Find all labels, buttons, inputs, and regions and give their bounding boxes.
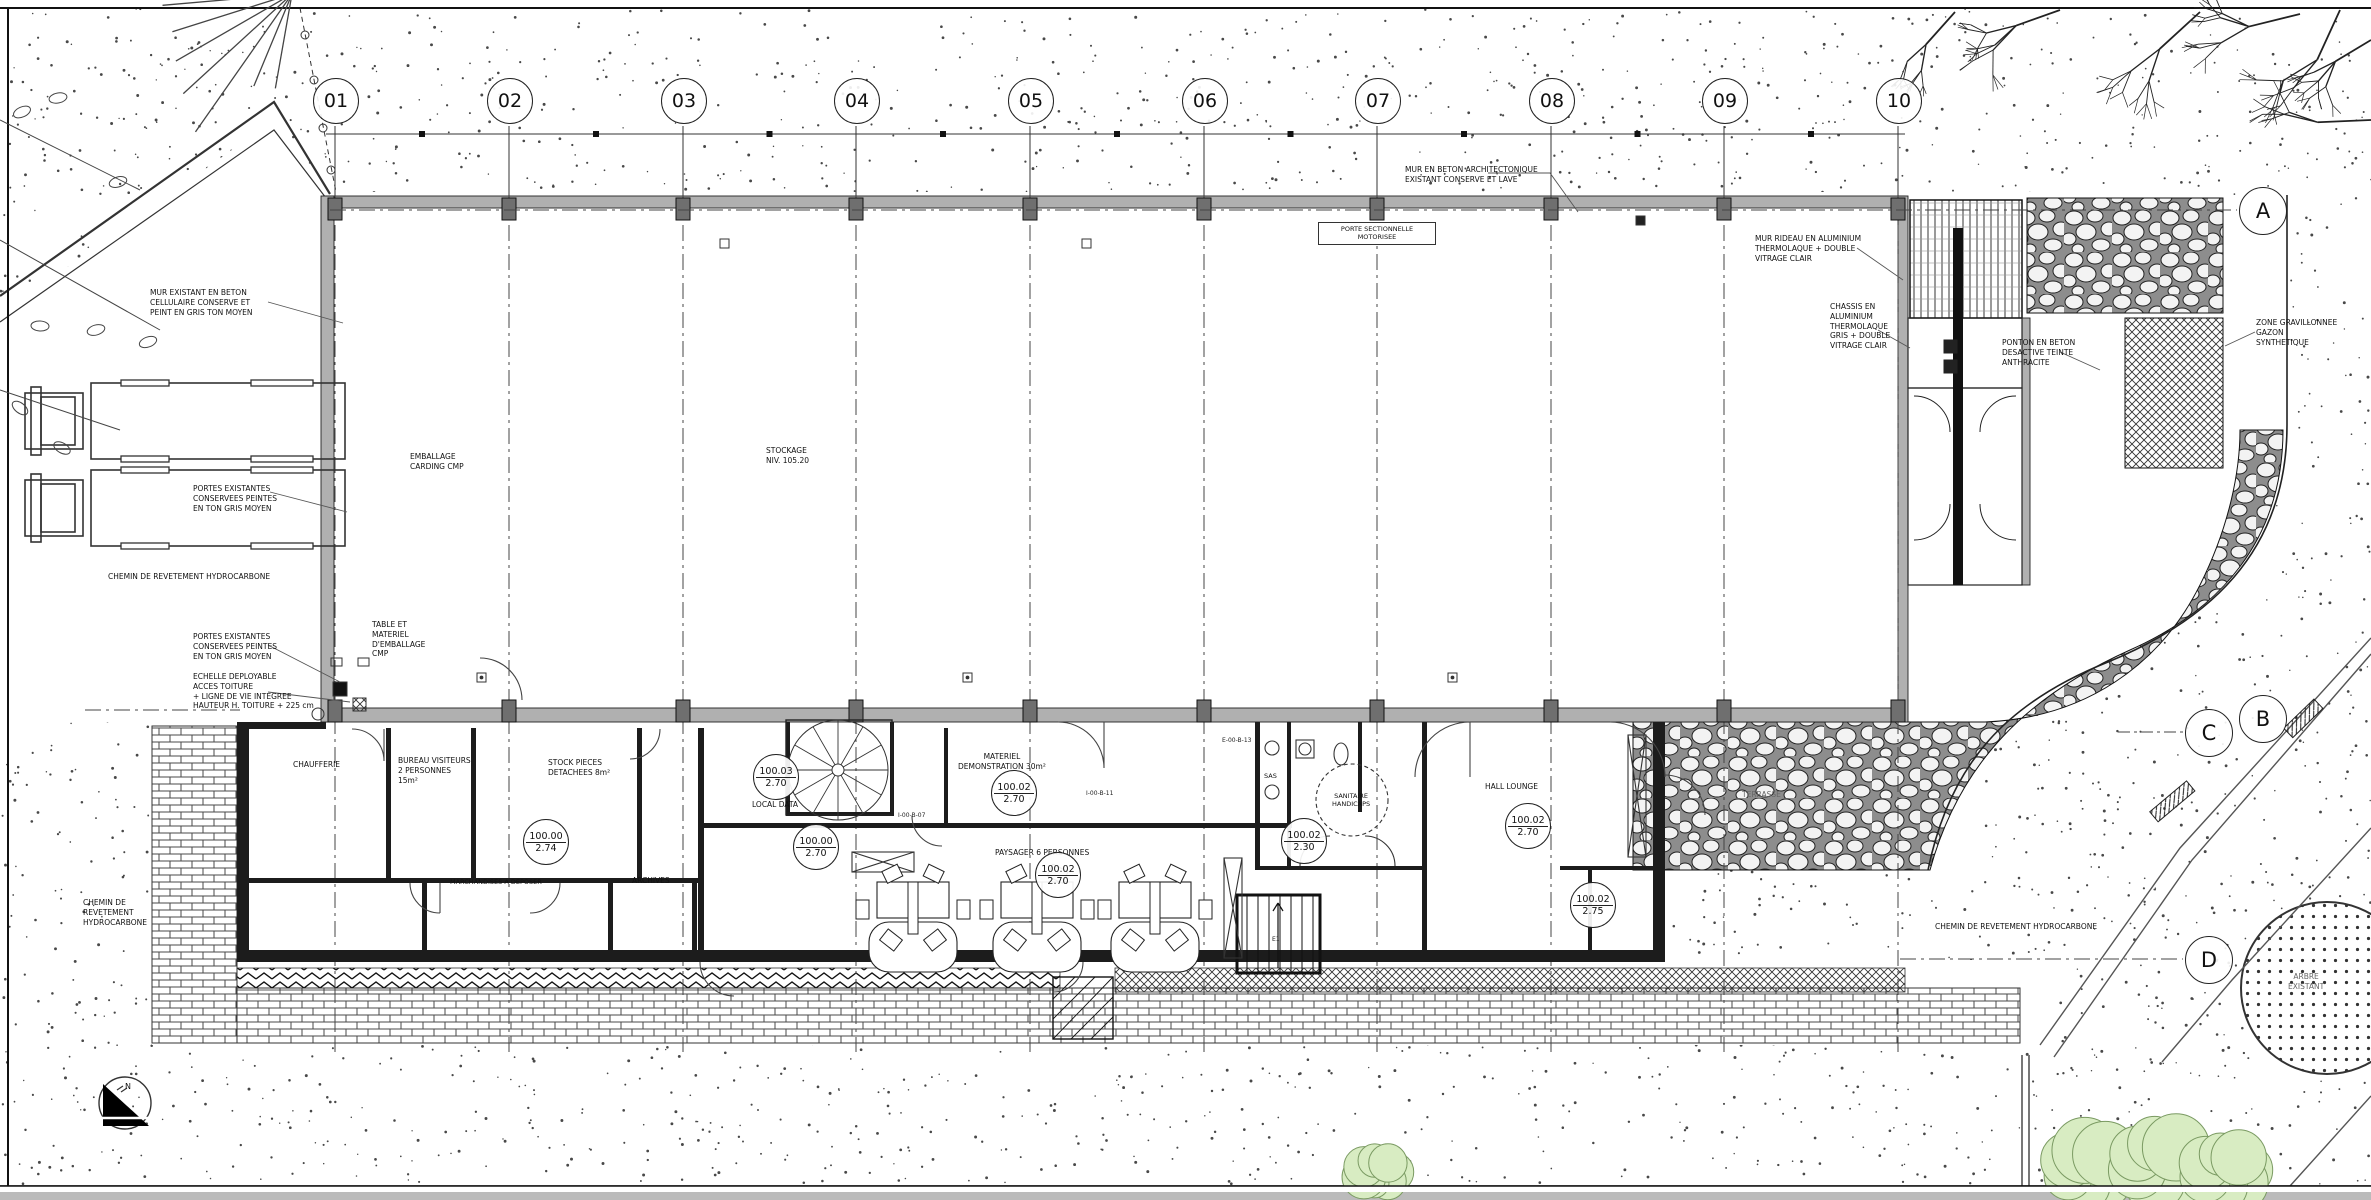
room-terrasse: TERRASSE (1742, 790, 1781, 800)
room-chaufferie: CHAUFFERIE (293, 760, 340, 770)
note-porte-sectionnelle: PORTE SECTIONNELLE MOTORISEE (1318, 222, 1436, 245)
note-portes-wall: PORTES EXISTANTES CONSERVEES PEINTES EN … (193, 632, 277, 661)
floor-plan-sheet: 01 02 03 04 05 06 07 08 09 10 A B C D MU… (0, 0, 2371, 1200)
note-echelle: ECHELLE DEPLOYABLE ACCES TOITURE + LIGNE… (193, 672, 314, 711)
floor-plan-drawing (0, 0, 2371, 1200)
note-chemin-bas: CHEMIN DE REVETEMENT HYDROCARBONE (108, 572, 270, 582)
level-marker: 100.022.70 (991, 770, 1037, 816)
grid-bubble-07: 07 (1355, 78, 1401, 124)
level-marker: 100.022.75 (1570, 882, 1616, 928)
level-marker: 100.002.70 (793, 824, 839, 870)
note-mur-cellulaire: MUR EXISTANT EN BETON CELLULAIRE CONSERV… (150, 288, 253, 317)
grid-bubble-10: 10 (1876, 78, 1922, 124)
grid-bubble-03: 03 (661, 78, 707, 124)
note-chemin-gauche: CHEMIN DE REVETEMENT HYDROCARBONE (83, 898, 147, 927)
level-marker: 100.032.70 (753, 754, 799, 800)
pebble-paving-top (2027, 198, 2223, 313)
windbreak-mast (1953, 228, 1963, 585)
door-tag: E-00-B-13 (1222, 737, 1251, 744)
note-gravillon: ZONE GRAVILLONNEE GAZON SYNTHETIQUE (2256, 318, 2337, 347)
grid-bubble-A: A (2239, 187, 2287, 235)
level-marker: 100.022.70 (1035, 852, 1081, 898)
door-tag: I-00-B-07 (898, 812, 925, 819)
room-bureau: BUREAU VISITEURS 2 PERSONNES 15m² (398, 756, 471, 785)
gravel-zone (2125, 318, 2223, 468)
grid-bubble-09: 09 (1702, 78, 1748, 124)
grid-bubble-04: 04 (834, 78, 880, 124)
level-marker: 100.002.74 (523, 819, 569, 865)
grid-bubble-01: 01 (313, 78, 359, 124)
grid-bubble-C: C (2185, 709, 2233, 757)
room-stock: STOCK PIECES DETACHEES 8m² (548, 758, 610, 778)
note-table-emballage: TABLE ET MATERIEL D'EMBALLAGE CMP (372, 620, 425, 659)
level-marker: 100.022.30 (1281, 818, 1327, 864)
grid-bubble-02: 02 (487, 78, 533, 124)
note-chassis: CHASSIS EN ALUMINIUM THERMOLAQUE GRIS + … (1830, 302, 1890, 351)
wood-deck (1910, 200, 2022, 318)
room-hall-lounge: HALL LOUNGE (1485, 782, 1538, 792)
door-tag: I-00-B-11 (1086, 790, 1113, 797)
room-sas: SAS (1264, 772, 1277, 780)
room-paysager: PAYSAGER 6 PERSONNES (995, 848, 1089, 858)
grid-bubble-D: D (2185, 936, 2233, 984)
room-sanitaire: SANITAIRE HANDICAPS (1332, 792, 1370, 809)
grid-bubble-05: 05 (1008, 78, 1054, 124)
grid-bubble-B: B (2239, 695, 2287, 743)
room-materiel: MATERIEL DEMONSTRATION 30m² (958, 752, 1046, 772)
level-marker: 100.022.70 (1505, 803, 1551, 849)
room-local-data: LOCAL DATA (752, 800, 798, 810)
room-emballage: EMBALLAGE CARDING CMP (410, 452, 464, 472)
grid-bubble-06: 06 (1182, 78, 1228, 124)
north-label: N (125, 1082, 131, 1092)
note-ponton: PONTON EN BETON DESACTIVE TEINTE ANTHRAC… (2002, 338, 2075, 367)
note-chemin-droite: CHEMIN DE REVETEMENT HYDROCARBONE (1935, 922, 2097, 932)
room-marchandises: MARCHANDISES A DEPOSER (450, 878, 542, 886)
door-tag: E1 (1272, 936, 1280, 943)
room-archives: ARCHIVES (632, 876, 670, 886)
grid-bubble-08: 08 (1529, 78, 1575, 124)
note-mur-archi: MUR EN BETON ARCHITECTONIQUE EXISTANT CO… (1405, 165, 1538, 185)
note-mur-rideau: MUR RIDEAU EN ALUMINIUM THERMOLAQUE + DO… (1755, 234, 1861, 263)
room-stockage: STOCKAGE NIV. 105.20 (766, 446, 809, 466)
label-arbre: ARBRE EXISTANT (2288, 972, 2324, 992)
note-portes-truck: PORTES EXISTANTES CONSERVEES PEINTES EN … (193, 484, 277, 513)
